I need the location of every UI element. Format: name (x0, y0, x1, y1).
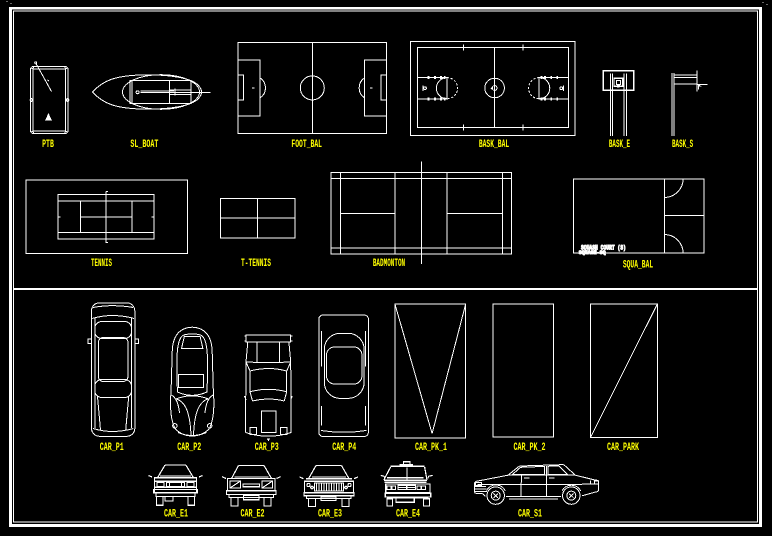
svg-text:PTB: PTB (42, 139, 54, 151)
svg-text:CAR_PARK: CAR_PARK (607, 442, 639, 454)
svg-text:SQUA_BAL: SQUA_BAL (623, 260, 654, 272)
svg-text:BASK_E: BASK_E (609, 139, 630, 151)
svg-text:SQUASH-SQ: SQUASH-SQ (579, 250, 606, 256)
svg-text:CAR_P3: CAR_P3 (255, 442, 279, 454)
svg-text:FOOT_BAL: FOOT_BAL (291, 139, 322, 151)
svg-text:CAR_S1: CAR_S1 (518, 509, 542, 521)
svg-text:CAR_E1: CAR_E1 (164, 509, 188, 521)
svg-text:CAR_PK_2: CAR_PK_2 (514, 442, 546, 454)
svg-text:CAR_E4: CAR_E4 (396, 509, 420, 521)
svg-text:CAR_E3: CAR_E3 (318, 509, 342, 521)
svg-text:CAR_P1: CAR_P1 (100, 442, 124, 454)
svg-text:T-TENNIS: T-TENNIS (241, 258, 271, 270)
svg-text:BADMONTON: BADMONTON (373, 258, 405, 270)
svg-text:BASK_S: BASK_S (672, 139, 693, 151)
svg-text:CAR_P4: CAR_P4 (332, 442, 356, 454)
svg-text:TENNIS: TENNIS (91, 258, 112, 270)
svg-text:BASK_BAL: BASK_BAL (479, 139, 510, 151)
svg-text:CAR_P2: CAR_P2 (177, 442, 201, 454)
svg-text:SL_BOAT: SL_BOAT (130, 139, 158, 151)
svg-text:CAR_PK_1: CAR_PK_1 (415, 442, 447, 454)
svg-text:CAR_E2: CAR_E2 (241, 509, 265, 521)
